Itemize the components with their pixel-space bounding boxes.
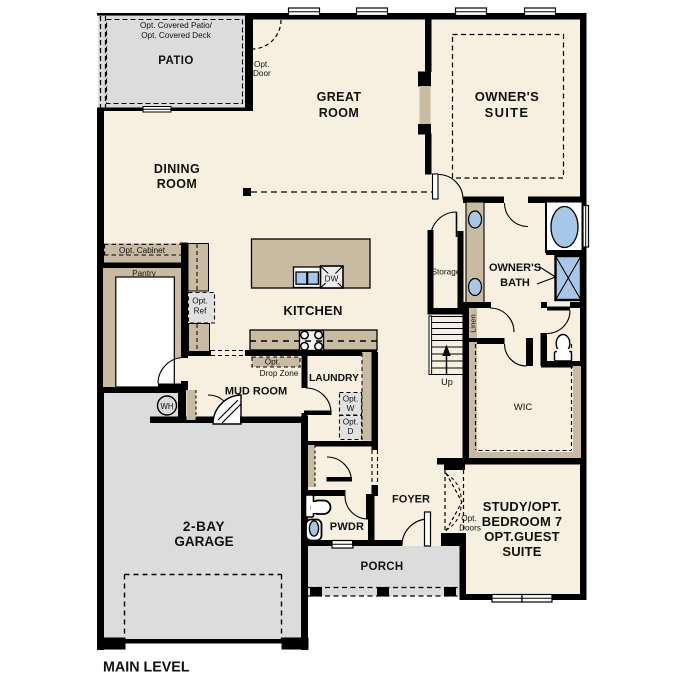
svg-text:Drop Zone: Drop Zone xyxy=(260,369,299,378)
svg-text:DINING: DINING xyxy=(154,162,200,176)
svg-text:WH: WH xyxy=(161,402,174,411)
svg-text:2-BAY: 2-BAY xyxy=(183,519,225,534)
svg-text:DW: DW xyxy=(325,275,339,284)
svg-text:Opt.: Opt. xyxy=(265,358,280,367)
svg-text:ROOM: ROOM xyxy=(319,106,360,120)
svg-text:OWNER'S: OWNER'S xyxy=(475,89,539,104)
svg-text:STUDY/OPT.: STUDY/OPT. xyxy=(483,499,562,514)
svg-text:SUITE: SUITE xyxy=(502,544,541,559)
svg-text:KITCHEN: KITCHEN xyxy=(283,303,342,318)
svg-text:LAUNDRY: LAUNDRY xyxy=(309,373,359,384)
svg-text:Storage: Storage xyxy=(431,267,460,277)
svg-text:GARAGE: GARAGE xyxy=(174,534,233,549)
svg-text:Pantry: Pantry xyxy=(132,269,157,278)
svg-text:BEDROOM 7: BEDROOM 7 xyxy=(482,514,563,529)
svg-text:Opt.: Opt. xyxy=(343,395,358,404)
svg-text:PORCH: PORCH xyxy=(360,561,403,573)
svg-text:ROOM: ROOM xyxy=(157,177,198,191)
svg-text:OWNER'S: OWNER'S xyxy=(489,262,541,274)
svg-text:Up: Up xyxy=(441,377,453,387)
svg-text:MAIN LEVEL: MAIN LEVEL xyxy=(103,660,190,676)
svg-text:Opt.: Opt. xyxy=(254,60,269,69)
svg-text:Opt. Covered Patio/: Opt. Covered Patio/ xyxy=(140,21,213,30)
svg-text:OPT.GUEST: OPT.GUEST xyxy=(484,529,559,544)
svg-text:PWDR: PWDR xyxy=(330,521,364,533)
svg-text:Opt.: Opt. xyxy=(192,297,207,306)
svg-text:GREAT: GREAT xyxy=(317,90,362,104)
svg-text:Opt.: Opt. xyxy=(343,418,358,427)
svg-text:Linen: Linen xyxy=(469,314,478,333)
svg-text:Doors: Doors xyxy=(459,524,481,533)
svg-text:W: W xyxy=(347,404,355,413)
svg-text:WIC: WIC xyxy=(514,402,533,413)
svg-text:Ref: Ref xyxy=(194,307,207,316)
svg-text:PATIO: PATIO xyxy=(158,55,193,67)
svg-text:BATH: BATH xyxy=(500,277,530,289)
svg-text:FOYER: FOYER xyxy=(392,494,430,506)
svg-text:Opt. Cabinet: Opt. Cabinet xyxy=(119,246,166,255)
svg-text:D: D xyxy=(348,427,354,436)
svg-text:Door: Door xyxy=(253,69,271,78)
svg-text:Opt. Covered Deck: Opt. Covered Deck xyxy=(141,31,212,40)
svg-text:SUITE: SUITE xyxy=(485,105,530,120)
svg-text:Opt.: Opt. xyxy=(461,514,476,523)
svg-text:MUD ROOM: MUD ROOM xyxy=(225,386,287,398)
